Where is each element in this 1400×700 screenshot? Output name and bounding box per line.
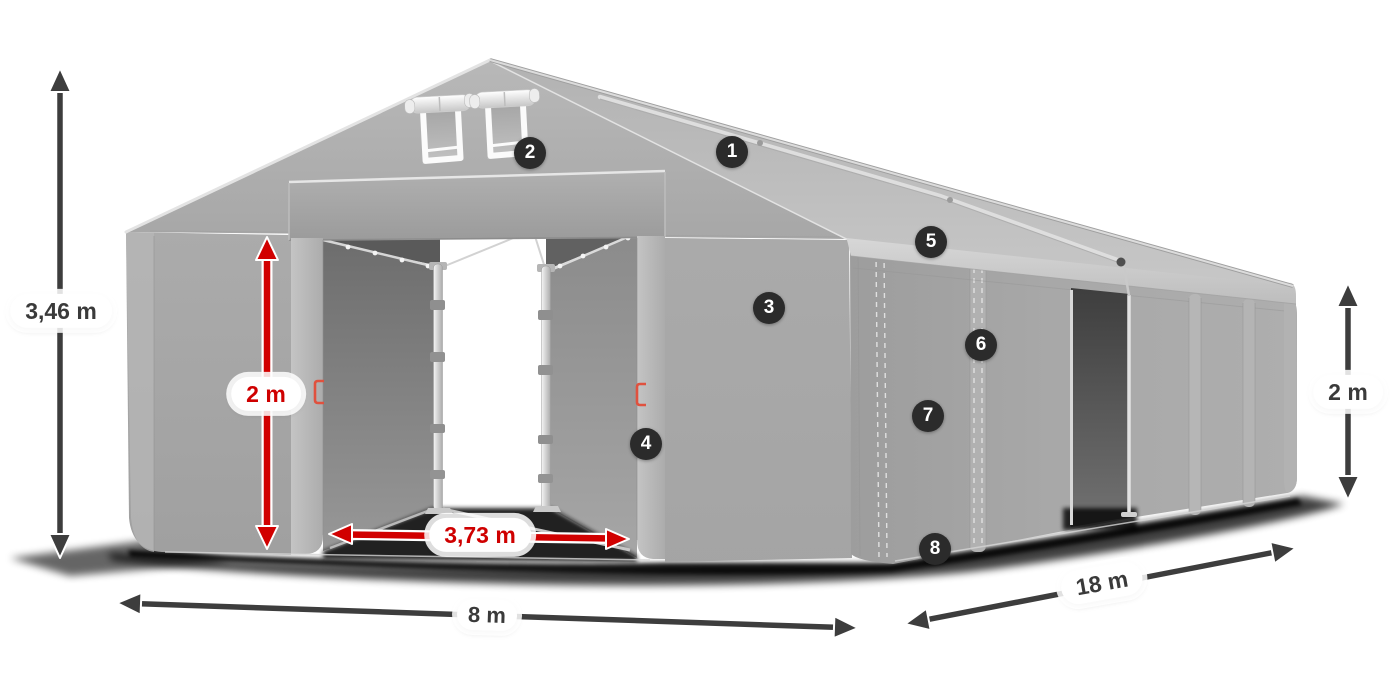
callout-badge-3[interactable]: 3 xyxy=(753,292,785,324)
label-side-height: 2 m xyxy=(1313,375,1383,409)
tent-dimension-diagram: 3,46 m 2 m 3,73 m 8 m 18 m 2 m 1 2 3 4 5… xyxy=(0,0,1400,700)
label-total-height: 3,46 m xyxy=(10,294,112,328)
callout-badge-6[interactable]: 6 xyxy=(965,329,997,361)
inner-wall-left xyxy=(323,240,440,551)
label-entrance-width: 3,73 m xyxy=(429,518,531,552)
door-lintel xyxy=(289,171,665,241)
label-front-width: 8 m xyxy=(457,598,518,631)
callout-badge-4[interactable]: 4 xyxy=(630,428,662,460)
cover-strip-1 xyxy=(1189,294,1201,515)
callout-badge-2[interactable]: 2 xyxy=(514,137,546,169)
side-opening xyxy=(1071,288,1130,527)
cover-strip-2 xyxy=(1243,299,1255,507)
label-entrance-height: 2 m xyxy=(231,377,301,411)
callout-badge-1[interactable]: 1 xyxy=(716,136,748,168)
callout-badge-5[interactable]: 5 xyxy=(915,226,947,258)
front-right-wall xyxy=(665,238,852,562)
door-jamb-right xyxy=(637,236,665,559)
doorway-interior xyxy=(323,230,637,562)
inner-wall-right xyxy=(546,233,637,558)
callout-badge-8[interactable]: 8 xyxy=(919,533,951,565)
tent-illustration xyxy=(0,0,1400,700)
end-wrap xyxy=(1284,303,1297,493)
callout-badge-7[interactable]: 7 xyxy=(912,400,944,432)
panel-seam-strip xyxy=(970,264,986,552)
pole-connector-knob xyxy=(1117,258,1126,267)
